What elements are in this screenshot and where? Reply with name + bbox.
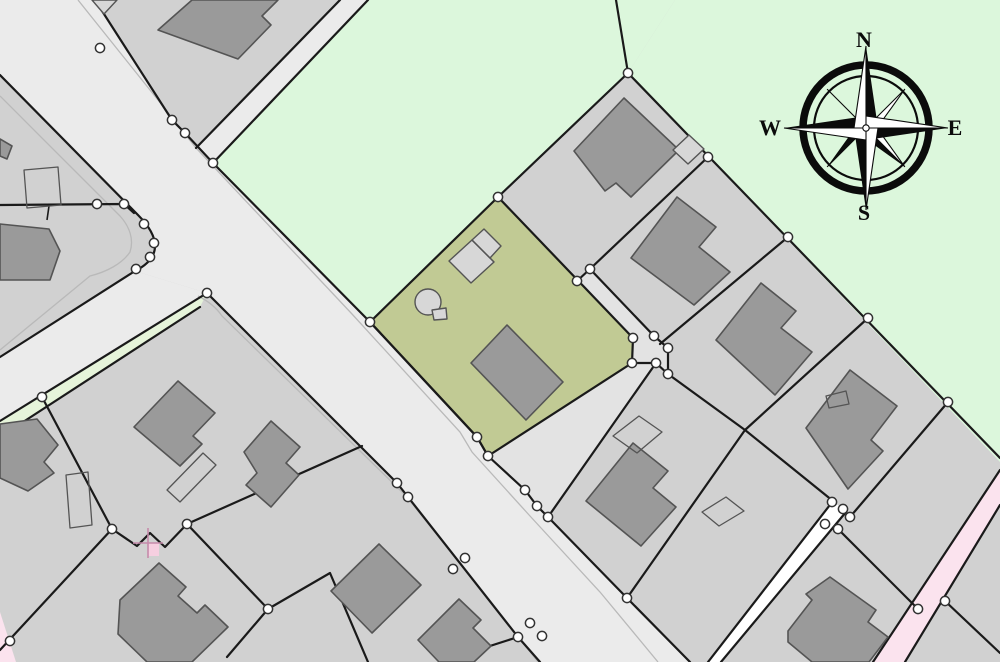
compass-label-west: W [759, 115, 781, 140]
map-canvas[interactable]: N E S W [0, 0, 1000, 662]
compass-label-north: N [856, 27, 872, 52]
survey-cross-fill [148, 543, 159, 556]
compass-label-east: E [948, 115, 963, 140]
building [0, 224, 60, 280]
compass-label-south: S [858, 200, 870, 225]
round-structure-tab [432, 308, 447, 320]
